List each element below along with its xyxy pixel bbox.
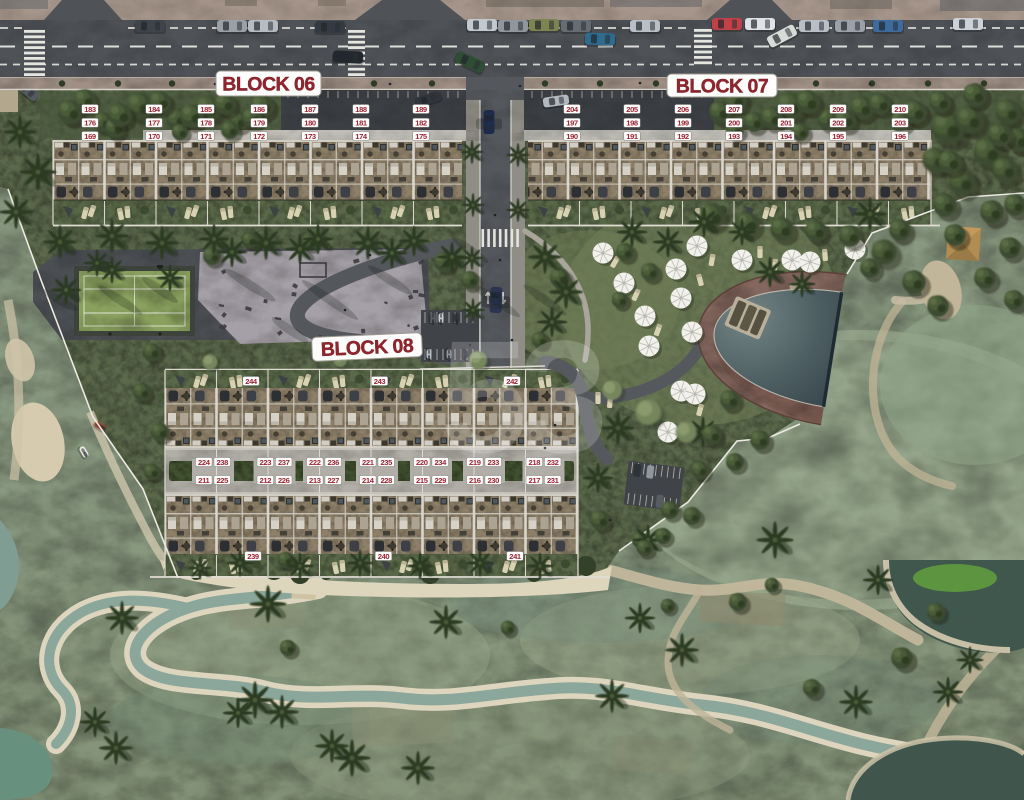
svg-text:243: 243 xyxy=(374,377,386,386)
svg-text:206: 206 xyxy=(677,105,689,114)
svg-text:53: 53 xyxy=(440,307,603,486)
svg-text:238: 238 xyxy=(216,458,228,467)
svg-text:210: 210 xyxy=(894,105,906,114)
svg-text:244: 244 xyxy=(245,377,258,386)
svg-text:170: 170 xyxy=(148,132,160,141)
svg-text:171: 171 xyxy=(200,132,213,141)
svg-text:192: 192 xyxy=(677,132,689,141)
svg-text:177: 177 xyxy=(148,119,160,128)
svg-text:173: 173 xyxy=(304,132,316,141)
svg-text:182: 182 xyxy=(415,119,427,128)
svg-text:225: 225 xyxy=(216,476,229,485)
svg-text:202: 202 xyxy=(832,119,844,128)
svg-text:240: 240 xyxy=(378,552,390,561)
svg-text:241: 241 xyxy=(509,552,522,561)
svg-text:224: 224 xyxy=(198,458,211,467)
svg-text:205: 205 xyxy=(626,105,639,114)
svg-text:191: 191 xyxy=(626,132,639,141)
svg-text:227: 227 xyxy=(327,476,339,485)
svg-text:203: 203 xyxy=(894,119,906,128)
svg-text:214: 214 xyxy=(362,476,375,485)
svg-text:189: 189 xyxy=(415,105,427,114)
svg-text:BLOCK 07: BLOCK 07 xyxy=(676,76,768,98)
svg-text:220: 220 xyxy=(416,458,428,467)
svg-text:222: 222 xyxy=(309,458,321,467)
svg-text:207: 207 xyxy=(728,105,740,114)
svg-text:188: 188 xyxy=(355,105,367,114)
svg-text:211: 211 xyxy=(198,476,210,485)
svg-text:200: 200 xyxy=(728,119,740,128)
svg-text:212: 212 xyxy=(260,476,272,485)
svg-text:198: 198 xyxy=(626,119,638,128)
svg-text:174: 174 xyxy=(355,132,368,141)
svg-text:183: 183 xyxy=(84,105,96,114)
svg-text:197: 197 xyxy=(566,119,578,128)
svg-text:175: 175 xyxy=(415,132,428,141)
svg-text:195: 195 xyxy=(832,132,845,141)
svg-text:213: 213 xyxy=(309,476,321,485)
svg-text:237: 237 xyxy=(278,458,290,467)
svg-text:236: 236 xyxy=(327,458,339,467)
svg-text:176: 176 xyxy=(84,119,96,128)
svg-text:184: 184 xyxy=(148,105,161,114)
svg-text:169: 169 xyxy=(84,132,96,141)
svg-text:180: 180 xyxy=(304,119,316,128)
svg-text:181: 181 xyxy=(355,119,368,128)
svg-text:186: 186 xyxy=(253,105,265,114)
svg-text:228: 228 xyxy=(380,476,392,485)
svg-text:201: 201 xyxy=(780,119,793,128)
svg-text:194: 194 xyxy=(780,132,793,141)
svg-text:172: 172 xyxy=(253,132,265,141)
svg-text:221: 221 xyxy=(362,458,375,467)
svg-text:215: 215 xyxy=(416,476,429,485)
svg-text:199: 199 xyxy=(677,119,689,128)
svg-text:223: 223 xyxy=(260,458,272,467)
svg-text:178: 178 xyxy=(200,119,212,128)
svg-text:185: 185 xyxy=(200,105,213,114)
svg-text:190: 190 xyxy=(566,132,578,141)
svg-text:193: 193 xyxy=(728,132,740,141)
svg-text:BLOCK 08: BLOCK 08 xyxy=(320,335,414,361)
svg-text:204: 204 xyxy=(566,105,579,114)
svg-text:235: 235 xyxy=(380,458,393,467)
svg-text:239: 239 xyxy=(247,552,259,561)
svg-text:208: 208 xyxy=(780,105,792,114)
svg-text:BLOCK 06: BLOCK 06 xyxy=(222,74,315,96)
svg-text:226: 226 xyxy=(278,476,290,485)
svg-text:187: 187 xyxy=(304,105,316,114)
svg-text:209: 209 xyxy=(832,105,844,114)
svg-text:179: 179 xyxy=(253,119,265,128)
svg-text:196: 196 xyxy=(894,132,906,141)
